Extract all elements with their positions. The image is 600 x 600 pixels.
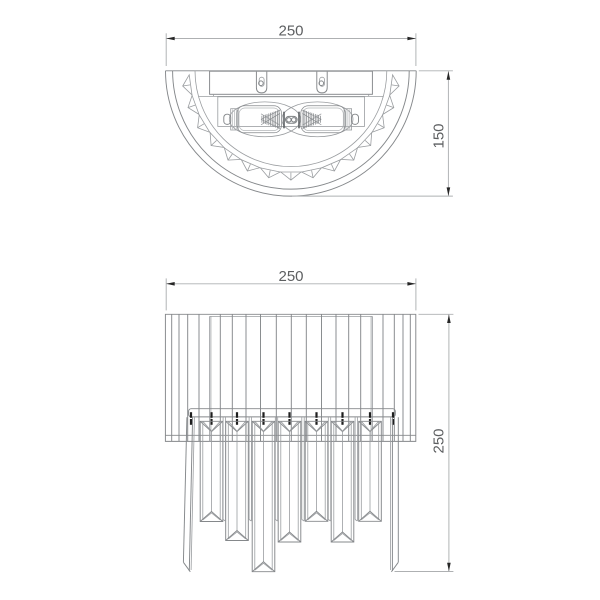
svg-text:250: 250 bbox=[431, 428, 448, 453]
svg-text:250: 250 bbox=[278, 268, 303, 285]
svg-text:250: 250 bbox=[278, 23, 303, 40]
svg-text:150: 150 bbox=[430, 123, 447, 148]
